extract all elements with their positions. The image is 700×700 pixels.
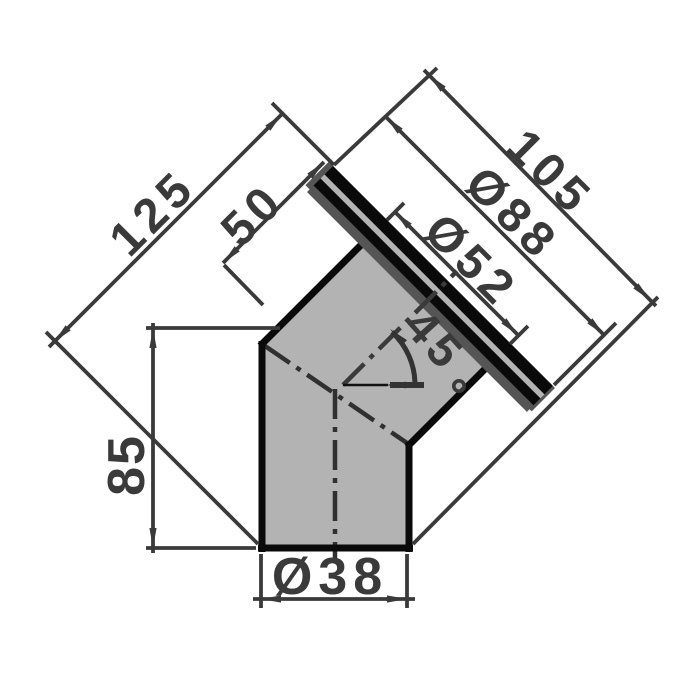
svg-text:50: 50	[211, 173, 295, 257]
svg-text:125: 125	[100, 160, 207, 267]
svg-text:85: 85	[98, 434, 156, 496]
svg-text:Ø38: Ø38	[272, 548, 388, 606]
